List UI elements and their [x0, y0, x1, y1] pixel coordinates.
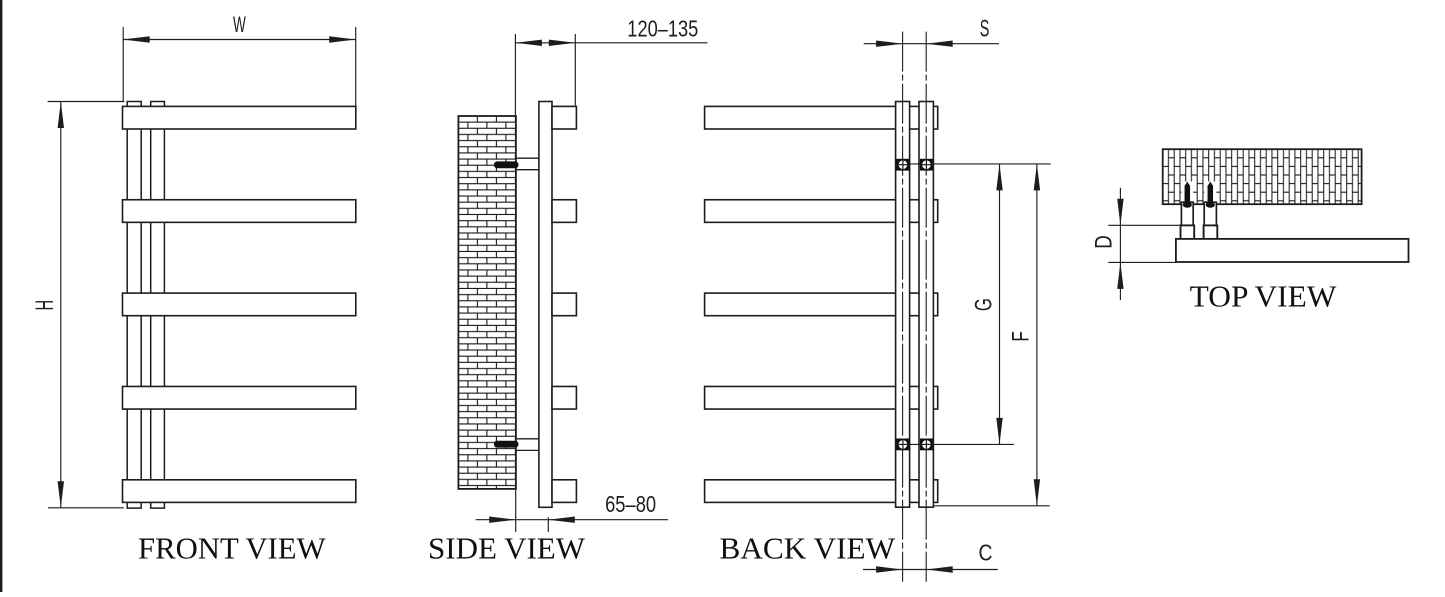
svg-text:F: F [1008, 331, 1035, 341]
svg-text:D: D [1092, 235, 1118, 249]
svg-text:S: S [980, 16, 990, 43]
svg-text:65–80: 65–80 [605, 491, 656, 517]
svg-text:BACK VIEW: BACK VIEW [720, 530, 896, 565]
svg-text:TOP VIEW: TOP VIEW [1190, 278, 1337, 313]
svg-text:120–135: 120–135 [627, 16, 698, 42]
svg-text:FRONT VIEW: FRONT VIEW [138, 530, 326, 565]
svg-text:C: C [979, 540, 993, 566]
svg-text:SIDE VIEW: SIDE VIEW [428, 530, 586, 565]
svg-text:G: G [971, 298, 998, 311]
svg-text:W: W [233, 12, 246, 37]
svg-text:H: H [31, 300, 59, 310]
